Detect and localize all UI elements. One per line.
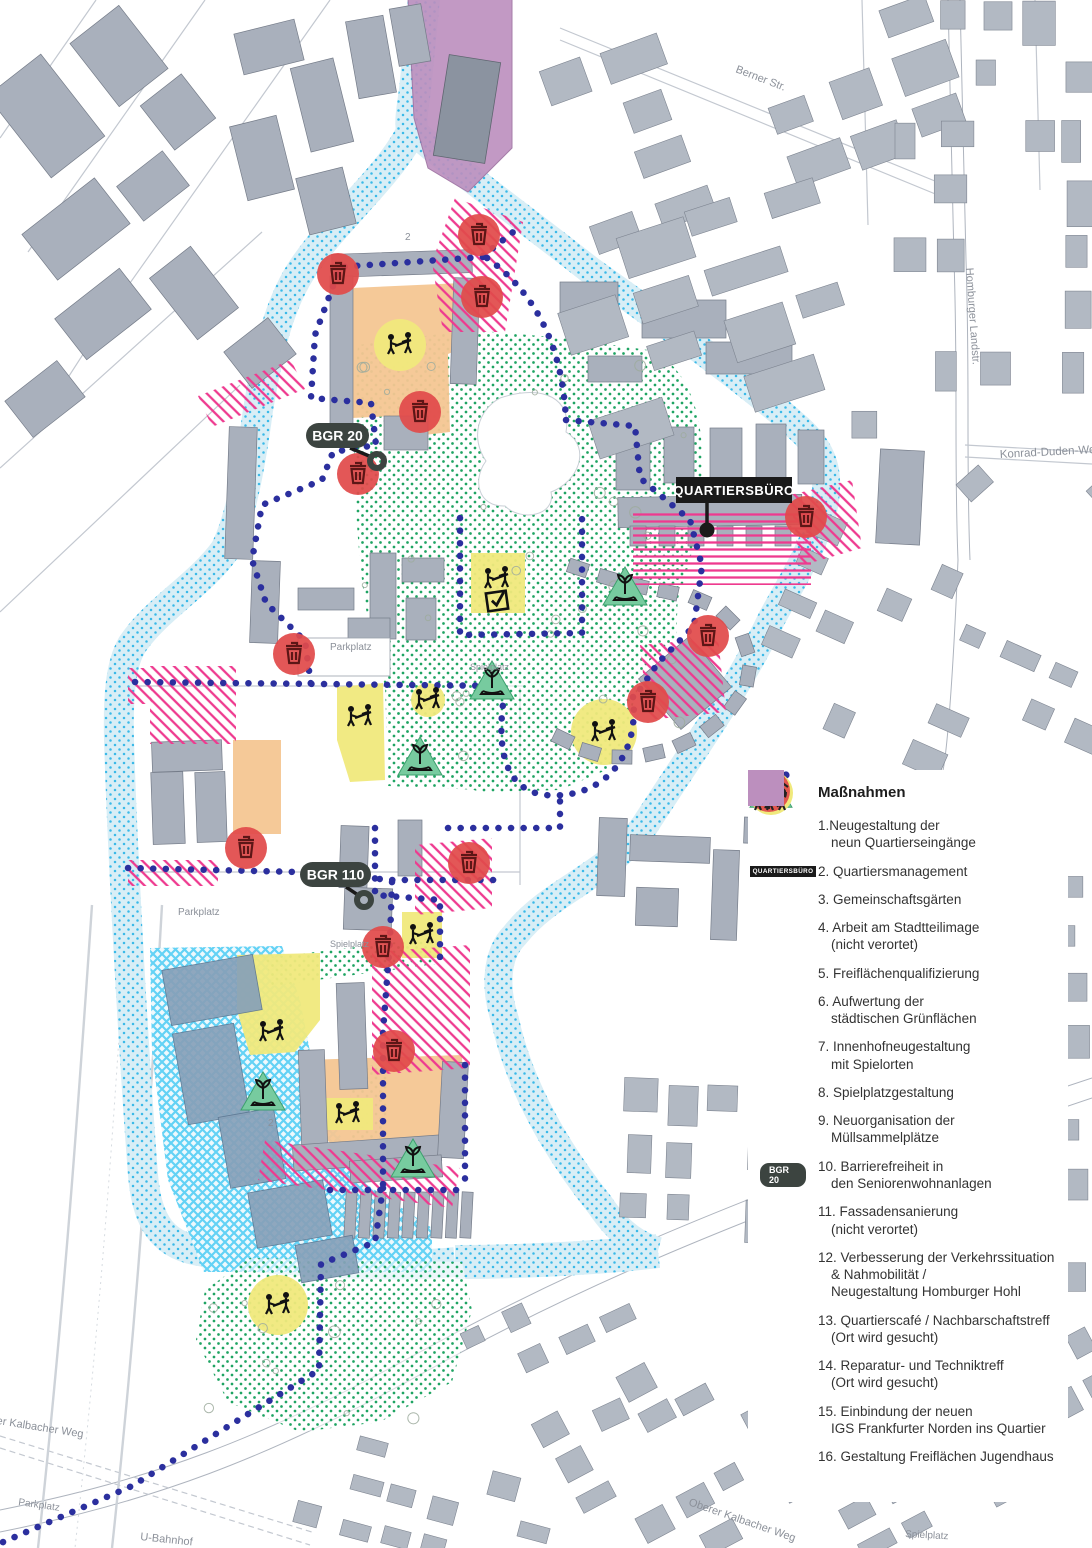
- legend-line: IGS Frankfurter Norden ins Quartier: [818, 1420, 1046, 1437]
- courtyard-zone: [233, 740, 281, 834]
- legend-line: mit Spielorten: [818, 1056, 970, 1073]
- legend-line: 13. Quartierscafé / Nachbarschaftstreff: [818, 1312, 1050, 1329]
- waste-marker: [687, 615, 729, 657]
- legend-item: 5. Freiflächenqualifizierung: [760, 965, 1062, 982]
- legend-line: 1.Neugestaltung der: [818, 817, 976, 834]
- legend-line: Müllsammelplätze: [818, 1129, 955, 1146]
- legend-line: 2. Quartiersmanagement: [818, 863, 967, 880]
- legend-line: (nicht verortet): [818, 1221, 958, 1238]
- legend-line: 9. Neuorganisation der: [818, 1112, 955, 1129]
- waste-marker: [627, 681, 669, 723]
- map-label: Spielplatz: [905, 1529, 949, 1542]
- legend-item-text: 12. Verbesserung der Verkehrssituation& …: [818, 1249, 1054, 1301]
- legend-item-text: 14. Reparatur- und Techniktreff(Ort wird…: [818, 1357, 1004, 1392]
- legend-line: (nicht verortet): [818, 936, 979, 953]
- legend-line: 5. Freiflächenqualifizierung: [818, 965, 979, 982]
- legend-item: 6. Aufwertung derstädtischen Grünflächen: [760, 993, 1062, 1028]
- legend-item-text: 11. Fassadensanierung(nicht verortet): [818, 1203, 958, 1238]
- map-label: 2: [268, 1118, 274, 1129]
- legend-line: städtischen Grünflächen: [818, 1010, 977, 1027]
- legend-item: 11. Fassadensanierung(nicht verortet): [760, 1203, 1062, 1238]
- legend-item-text: 6. Aufwertung derstädtischen Grünflächen: [818, 993, 977, 1028]
- legend-line: 16. Gestaltung Freiflächen Jugendhaus: [818, 1448, 1054, 1465]
- legend-item-text: 8. Spielplatzgestaltung: [818, 1084, 954, 1101]
- legend-line: den Seniorenwohnanlagen: [818, 1175, 992, 1192]
- legend-item-text: 10. Barrierefreiheit inden Seniorenwohna…: [818, 1158, 992, 1193]
- legend-item: QUARTIERSBÜRO2. Quartiersmanagement: [760, 863, 1062, 880]
- waste-marker: [273, 633, 315, 675]
- legend-line: 12. Verbesserung der Verkehrssituation: [818, 1249, 1054, 1266]
- svg-text:BGR 20: BGR 20: [312, 428, 363, 444]
- svg-text:QUARTIERSBÜRO: QUARTIERSBÜRO: [673, 483, 794, 498]
- legend-item: 4. Arbeit am Stadtteilimage(nicht verort…: [760, 919, 1062, 954]
- map-label: Spielplatz: [330, 939, 370, 949]
- map-label: Spielplatz: [470, 662, 510, 672]
- waste-marker: [373, 1030, 415, 1072]
- legend-panel: Maßnahmen 1.Neugestaltung derneun Quarti…: [748, 770, 1068, 1502]
- legend-item-text: 5. Freiflächenqualifizierung: [818, 965, 979, 982]
- legend-item: 9. Neuorganisation derMüllsammelplätze: [760, 1112, 1062, 1147]
- legend-item-text: 4. Arbeit am Stadtteilimage(nicht verort…: [818, 919, 979, 954]
- legend-item-text: 9. Neuorganisation derMüllsammelplätze: [818, 1112, 955, 1147]
- legend-item: 1.Neugestaltung derneun Quartierseingäng…: [760, 817, 1062, 852]
- legend-line: 11. Fassadensanierung: [818, 1203, 958, 1220]
- legend-item: 16. Gestaltung Freiflächen Jugendhaus: [760, 1448, 1062, 1465]
- waste-marker: [399, 391, 441, 433]
- legend-line: 15. Einbindung der neuen: [818, 1403, 1046, 1420]
- map-label: Parkplatz: [330, 642, 372, 653]
- waste-marker: [317, 253, 359, 295]
- legend-item-text: 13. Quartierscafé / Nachbarschaftstreff(…: [818, 1312, 1050, 1347]
- legend-item-text: 15. Einbindung der neuenIGS Frankfurter …: [818, 1403, 1046, 1438]
- legend-item: 8. Spielplatzgestaltung: [760, 1084, 1062, 1101]
- legend-item: BGR 2010. Barrierefreiheit inden Seniore…: [760, 1158, 1062, 1193]
- legend-line: 6. Aufwertung der: [818, 993, 977, 1010]
- legend-line: 14. Reparatur- und Techniktreff: [818, 1357, 1004, 1374]
- legend-title: Maßnahmen: [818, 784, 1062, 801]
- legend-line: neun Quartierseingänge: [818, 834, 976, 851]
- legend-item-text: 3. Gemeinschaftsgärten: [818, 891, 961, 908]
- legend-item: 12. Verbesserung der Verkehrssituation& …: [760, 1249, 1062, 1301]
- legend-line: 7. Innenhofneugestaltung: [818, 1038, 970, 1055]
- legend-swatch-quartiersbuero-chip: QUARTIERSBÜRO: [760, 866, 806, 877]
- legend-line: & Nahmobilität /: [818, 1266, 1054, 1283]
- legend-item: 14. Reparatur- und Techniktreff(Ort wird…: [760, 1357, 1062, 1392]
- legend-item-text: 2. Quartiersmanagement: [818, 863, 967, 880]
- legend-swatch-bgr-chip: BGR 20: [760, 1163, 806, 1187]
- waste-marker: [225, 827, 267, 869]
- legend-line: 4. Arbeit am Stadtteilimage: [818, 919, 979, 936]
- legend-line: 10. Barrierefreiheit in: [818, 1158, 992, 1175]
- map-label: 2: [405, 232, 411, 243]
- legend-line: (Ort wird gesucht): [818, 1329, 1050, 1346]
- legend-item-text: 7. Innenhofneugestaltungmit Spielorten: [818, 1038, 970, 1073]
- legend-list: 1.Neugestaltung derneun Quartierseingäng…: [760, 817, 1062, 1465]
- waste-marker: [458, 214, 500, 256]
- legend-line: 3. Gemeinschaftsgärten: [818, 891, 961, 908]
- legend-item: 7. Innenhofneugestaltungmit Spielorten: [760, 1038, 1062, 1073]
- legend-item: 3. Gemeinschaftsgärten: [760, 891, 1062, 908]
- legend-item-text: 1.Neugestaltung derneun Quartierseingäng…: [818, 817, 976, 852]
- map-label: Parkplatz: [178, 907, 220, 918]
- legend-line: 8. Spielplatzgestaltung: [818, 1084, 954, 1101]
- legend-line: Neugestaltung Homburger Hohl: [818, 1283, 1054, 1300]
- waste-marker: [461, 276, 503, 318]
- planning-map-page: QUARTIERSBÜROBGR 20BGR 110 Berner Str.Ho…: [0, 0, 1092, 1548]
- legend-item: 13. Quartierscafé / Nachbarschaftstreff(…: [760, 1312, 1062, 1347]
- legend-item: 15. Einbindung der neuenIGS Frankfurter …: [760, 1403, 1062, 1438]
- svg-text:BGR 110: BGR 110: [307, 867, 365, 883]
- waste-marker: [448, 842, 490, 884]
- legend-line: (Ort wird gesucht): [818, 1374, 1004, 1391]
- legend-item-text: 16. Gestaltung Freiflächen Jugendhaus: [818, 1448, 1054, 1465]
